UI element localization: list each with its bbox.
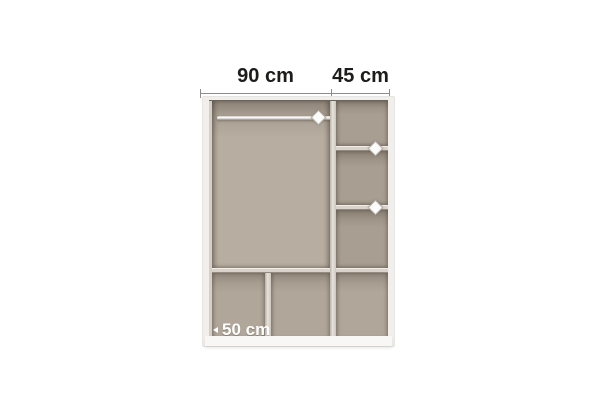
hanging-compartment bbox=[212, 101, 330, 268]
wardrobe-interior: 50 cm bbox=[209, 100, 388, 342]
right-compartment-middle bbox=[336, 151, 388, 205]
bottom-compartment-right bbox=[336, 273, 388, 341]
main-vertical-divider bbox=[330, 101, 336, 341]
arrow-left-icon bbox=[213, 327, 218, 333]
horizontal-divider bbox=[212, 268, 388, 273]
width-label-right: 45 cm bbox=[331, 64, 390, 88]
wardrobe-cabinet: 50 cm bbox=[203, 97, 394, 346]
right-compartment-top bbox=[336, 101, 388, 146]
right-compartment-lower bbox=[336, 210, 388, 268]
dimension-line bbox=[200, 93, 390, 94]
width-label-left: 90 cm bbox=[200, 64, 331, 88]
dimension-tick-left bbox=[200, 89, 201, 98]
plinth bbox=[205, 336, 392, 346]
bottom-compartment-middle bbox=[271, 273, 330, 341]
wardrobe-dimension-diagram: 90 cm 45 cm bbox=[0, 0, 600, 400]
